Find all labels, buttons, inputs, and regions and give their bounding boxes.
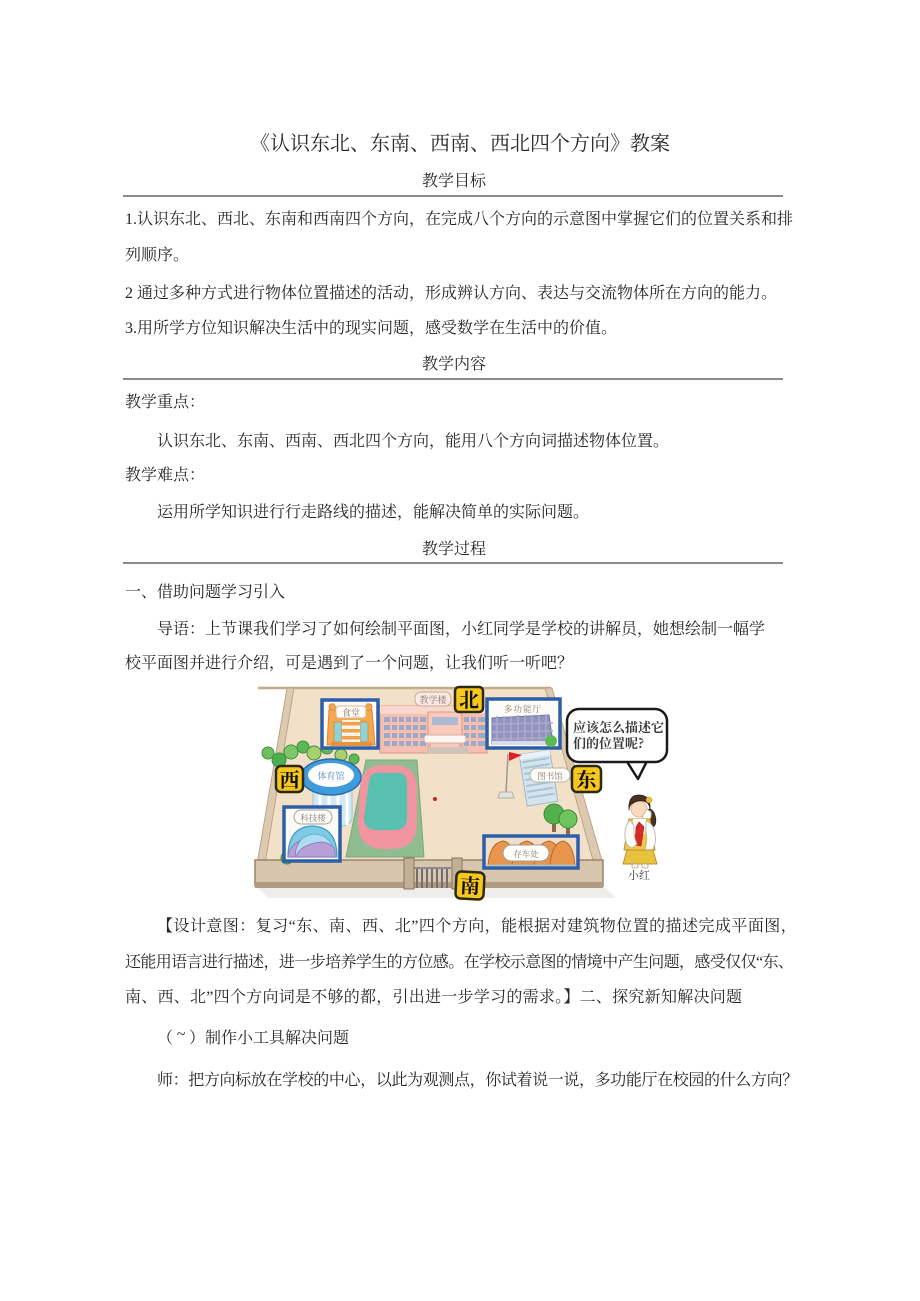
svg-text:食堂: 食堂 xyxy=(342,707,360,718)
svg-text:们的位置呢?: 们的位置呢? xyxy=(573,733,644,752)
svg-text:体育馆: 体育馆 xyxy=(317,770,344,781)
svg-text:北: 北 xyxy=(459,684,479,713)
svg-text:图书馆: 图书馆 xyxy=(537,771,563,781)
svg-text:教学楼: 教学楼 xyxy=(419,694,447,705)
svg-text:存车处: 存车处 xyxy=(513,849,539,859)
svg-text:东: 东 xyxy=(577,764,599,793)
svg-text:小红: 小红 xyxy=(628,867,650,883)
svg-text:西: 西 xyxy=(280,764,300,793)
svg-text:科技楼: 科技楼 xyxy=(300,813,326,823)
svg-text:多功能厅: 多功能厅 xyxy=(504,704,542,714)
svg-text:南: 南 xyxy=(459,869,480,899)
